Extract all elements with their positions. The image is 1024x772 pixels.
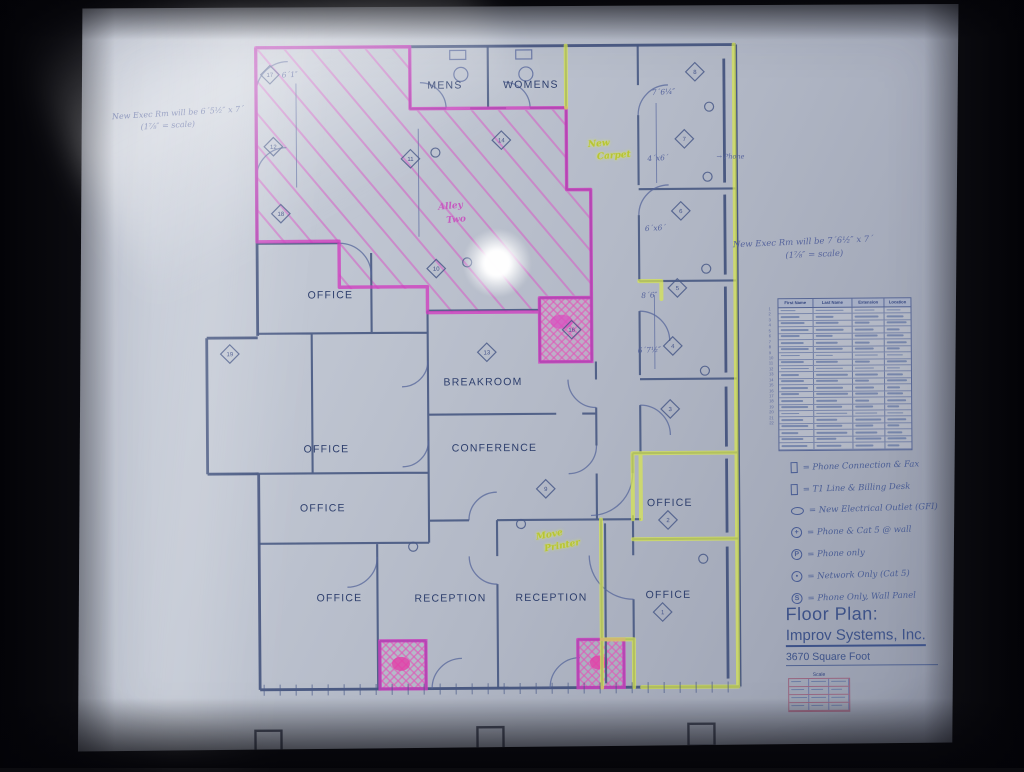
directory-cell [854,443,886,449]
crosshatch-line [335,642,381,688]
directory-cell [853,385,885,391]
dim-note: 7´6¼″ [652,87,676,97]
legend-item-text: = Phone only [807,548,865,560]
directory-cell [814,417,854,423]
legend-item: P= Phone only [791,544,976,560]
hatch-line [486,28,738,330]
directory-cell [779,372,814,378]
closet-1-scribble [392,657,410,671]
legend-item: = T1 Line & Billing Desk [791,479,976,495]
dim-note: 6´7½″ [637,345,661,355]
circle-p-symbol: P [791,549,802,560]
directory-cell [885,307,911,313]
ellipse-symbol [791,507,804,515]
directory-grid: First NameLast NameExtensionLocation [777,297,912,451]
room-number-marker: 13 [478,343,497,362]
directory-cell [853,410,885,416]
scale-table-row [789,703,849,711]
directory-cell [886,442,912,448]
room-number: 2 [666,518,670,524]
title-area: 3670 Square Foot [786,650,938,666]
room-number-marker: 1 [653,603,672,622]
room-label-office-w1: OFFICE [304,443,350,455]
directory-cell [814,391,854,397]
room-label-womens: WOMENS [503,79,559,91]
directory-header-cell: Location [885,298,911,306]
directory-cell [813,314,853,320]
room-number: 4 [671,344,675,350]
directory-cell [853,391,885,397]
room-number-marker: 7 [675,130,694,149]
note-line: Carpet [596,148,631,163]
room-label-office-w2: OFFICE [300,502,346,514]
directory-cell [813,346,853,352]
crosshatch-line [621,640,667,686]
directory-cell [814,372,854,378]
directory-cell [813,366,853,372]
room-number: 9 [544,487,548,493]
hatch-line [621,28,873,330]
directory-header-cell: Extension [853,298,885,306]
directory-cell [854,423,886,429]
title-block: Floor Plan: Improv Systems, Inc. 3670 Sq… [786,603,976,666]
room-label-conference: CONFERENCE [452,442,538,455]
directory-cell [853,307,885,313]
crosshatch-line [533,641,579,687]
directory-cell [779,437,814,443]
directory-cell [885,359,911,365]
scale-table-cell [829,687,849,694]
column-symbols [255,724,714,753]
hatch-line [459,29,711,331]
scale-table-grid [788,678,850,712]
note-line: Two [446,213,467,228]
directory-cell [853,378,885,384]
scale-table-cell [829,703,849,710]
room-number: 19 [226,352,233,358]
directory-cell [779,424,814,430]
directory-cell [813,308,853,314]
circle-s-symbol: S [791,593,802,604]
directory-cell [779,347,814,353]
dim-note: 4´x6´ [646,153,669,163]
room-number: 17 [267,73,274,79]
directory-cell [854,417,886,423]
directory-cell [853,333,885,339]
legend-item: •= Network Only (Cat 5) [791,566,976,582]
directory-cell [814,385,854,391]
scale-table-cell [809,679,829,686]
room-number: 10 [433,267,440,273]
directory-cell [813,359,853,365]
directory-header-cell: First Name [778,299,813,307]
directory-rows [779,307,912,450]
dim-note: 6´1″ [281,70,298,80]
room-number: 13 [483,350,490,356]
directory-cell [853,372,885,378]
room-number: 8 [693,70,697,76]
directory-row-number: 22 [769,420,773,425]
room-number: 3 [669,407,673,413]
directory-row-numbers: 12345678910111213141516171819202122 [768,306,773,426]
crosshatch-line [533,641,579,687]
directory-cell [853,359,885,365]
directory-cell [886,423,912,429]
title-company: Improv Systems, Inc. [786,626,926,647]
crosshatch-line [335,642,381,688]
room-label-office-e1: OFFICE [647,497,693,509]
room-number: 14 [498,138,505,144]
photograph-of-floor-plan: MENS WOMENS OFFICE BREAKROOM CONFERENCE … [0,0,1024,768]
hatch-line [594,28,846,330]
directory-cell [779,308,814,314]
legend-item: = New Electrical Outlet (GFI) [791,501,976,516]
legend-item-text: = T1 Line & Billing Desk [803,481,911,494]
dim-note: 8´6″ [641,290,658,300]
room-label-office-nw: OFFICE [308,289,354,301]
room-number-marker: 6 [672,202,691,221]
directory-cell [813,333,853,339]
room-label-office-sw: OFFICE [317,592,363,604]
directory-cell [814,443,854,449]
room-number-marker: 4 [664,337,683,356]
directory-cell [779,430,814,436]
room-number-marker: 8 [686,63,705,82]
hatch-line [108,31,360,333]
hatch-line [540,28,792,330]
rect-symbol [791,484,798,495]
directory-cell [885,372,911,378]
directory-cell [779,321,814,327]
room-label-office-e2: OFFICE [646,589,692,601]
directory-cell [779,398,814,404]
room-number: 1 [661,610,665,616]
circle-dot-symbol: • [791,571,802,582]
directory-cell [853,327,885,333]
room-label-reception-2: RECEPTION [515,592,587,605]
floor-plan-sheet: MENS WOMENS OFFICE BREAKROOM CONFERENCE … [78,4,962,756]
directory-cell [814,404,854,410]
room-label-breakroom: BREAKROOM [443,376,522,389]
scale-table-cell [809,703,829,710]
legend-item: += Phone & Cat 5 @ wall [791,522,976,538]
directory-cell [779,379,814,385]
hatch-line [432,29,684,331]
directory-cell [853,365,885,371]
hatch-line [648,27,900,329]
phone-callout-note: → Phone [716,152,744,160]
directory-cell [813,327,853,333]
crosshatch-line [423,641,469,687]
directory-cell [814,436,854,442]
directory-cell [885,385,911,391]
restroom-fixtures [450,50,533,82]
directory-cell [885,320,911,326]
legend-item-text: = New Electrical Outlet (GFI) [809,502,938,516]
legend-item-text: = Phone Connection & Fax [802,459,919,472]
scale-table-cell [789,695,809,702]
directory-cell [779,443,814,449]
legend-item-text: = Network Only (Cat 5) [807,568,910,581]
directory-cell [885,333,911,339]
room-number-marker: 19 [221,345,240,364]
directory-cell [853,404,885,410]
room-number-marker: 2 [659,511,678,530]
directory-cell [779,411,814,417]
directory-cell [885,397,911,403]
room-number: 6 [679,209,683,215]
room-number: 12 [270,145,277,151]
directory-cell [885,410,911,416]
directory-cell [813,321,853,327]
scale-table-cell [829,679,849,686]
directory-cell [853,398,885,404]
employee-directory-table: 12345678910111213141516171819202122 Firs… [777,297,920,432]
directory-cell [853,340,885,346]
scale-table: Scale [788,672,850,712]
directory-cell [779,417,814,423]
legend-item-text: = Phone Only, Wall Panel [807,590,916,603]
directory-cell [814,411,854,417]
directory-cell [854,430,886,436]
scale-table-cell [829,695,849,702]
directory-cell [779,314,814,320]
room-number: 7 [683,137,687,143]
dim-note: 6´x6´ [645,223,667,233]
directory-cell [813,353,853,359]
directory-cell [779,366,814,372]
directory-cell [885,339,911,345]
room-number-marker: 9 [537,480,556,499]
legend-item: S= Phone Only, Wall Panel [791,588,976,604]
sheet-content: MENS WOMENS OFFICE BREAKROOM CONFERENCE … [75,1,964,759]
scale-table-cell [789,679,809,686]
room-number: 18 [277,212,284,218]
room-number: 5 [676,286,680,292]
scale-table-cell [789,703,809,710]
directory-cell [885,352,911,358]
pink-marker-note: Alley Two [438,199,467,228]
circle-plus-symbol: + [791,527,802,538]
directory-cell [814,398,854,404]
directory-cell [779,327,814,333]
scale-table-cell [809,695,829,702]
legend-item: = Phone Connection & Fax [790,457,975,473]
directory-cell [886,430,912,436]
directory-row [779,442,911,449]
directory-cell [779,353,814,359]
title-heading: Floor Plan: [786,603,976,625]
scale-table-cell [809,687,829,694]
hatch-line [405,29,657,331]
directory-cell [779,340,814,346]
directory-cell [813,340,853,346]
room-label-reception-1: RECEPTION [414,592,486,605]
highlighter-note-new-carpet: New Carpet [587,136,631,164]
dimension-lines [296,81,658,372]
directory-header-cell: Last Name [813,299,853,307]
hatch-line [702,27,954,329]
directory-cell [853,314,885,320]
scale-table-cell [789,687,809,694]
room-number: 16 [568,328,575,334]
directory-cell [885,404,911,410]
directory-cell [885,391,911,397]
crosshatch-line [621,640,667,686]
directory-cell [779,392,814,398]
directory-cell [779,334,814,340]
directory-cell [779,385,814,391]
legend: = Phone Connection & Fax= T1 Line & Bill… [791,459,977,613]
directory-cell [779,359,814,365]
directory-cell [854,436,886,442]
directory-cell [885,327,911,333]
directory-cell [779,405,814,411]
legend-item-text: = Phone & Cat 5 @ wall [807,524,912,537]
directory-cell [885,314,911,320]
directory-cell [853,353,885,359]
directory-cell [814,430,854,436]
directory-cell [814,378,854,384]
room-number-marker: 17 [261,65,280,84]
directory-cell [885,365,911,371]
room-number: 11 [407,157,414,163]
directory-cell [886,436,912,442]
room-label-mens: MENS [427,79,462,91]
crosshatch-line [423,641,469,687]
directory-cell [885,378,911,384]
directory-cell [814,424,854,430]
directory-cell [885,417,911,423]
hatch-line [729,27,981,329]
demolition-hatch-area [108,27,981,333]
directory-cell [853,320,885,326]
rect-symbol [790,462,797,473]
directory-cell [885,346,911,352]
directory-cell [853,346,885,352]
